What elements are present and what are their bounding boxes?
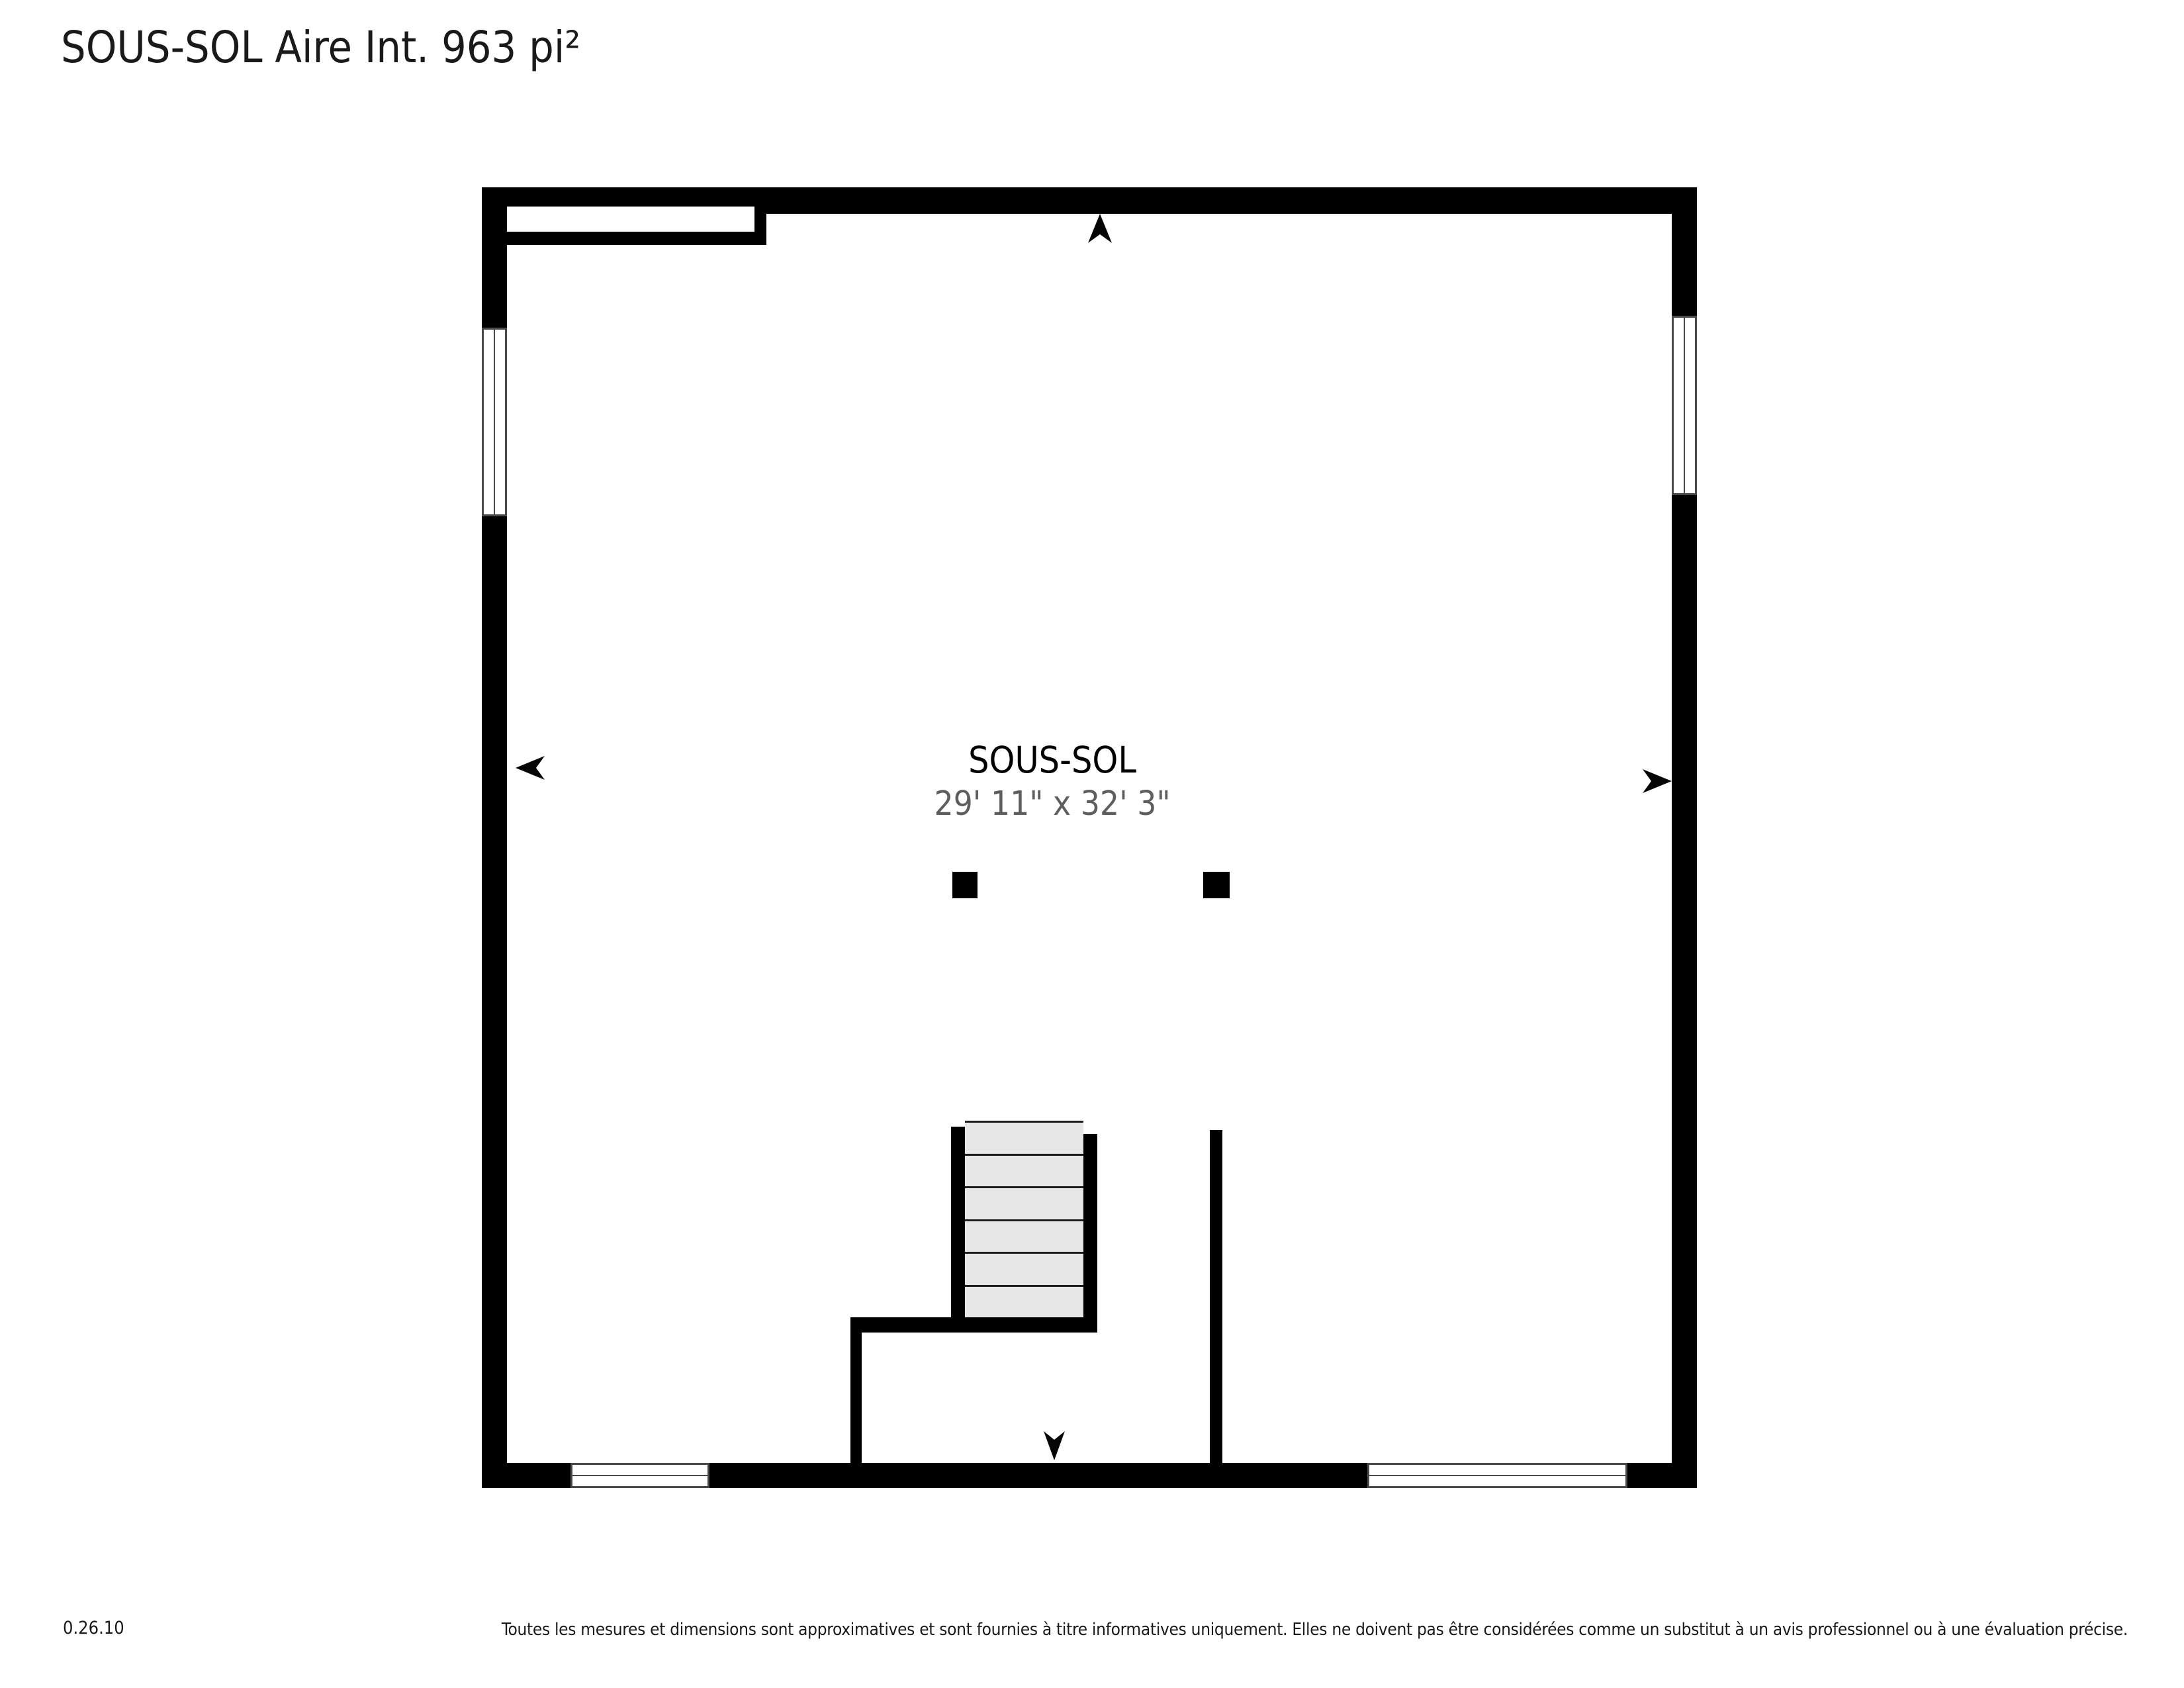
version-label: 0.26.10 (63, 1618, 124, 1638)
window-bottom-left (570, 1463, 709, 1488)
window-mullion (572, 1475, 708, 1476)
arrow-left-icon (516, 756, 545, 780)
wall-right-of-stairs (1210, 1130, 1222, 1463)
window-right (1672, 316, 1697, 495)
stair-wall-right (1083, 1134, 1097, 1317)
wall-below-stairs-left (850, 1333, 862, 1463)
stair-tread (965, 1186, 1083, 1219)
stair-tread (965, 1154, 1083, 1187)
wall-left-upper (482, 187, 507, 328)
stair-tread (965, 1121, 1083, 1154)
window-left (482, 328, 507, 516)
stair-tread (965, 1285, 1083, 1318)
wall-bottom-right (1627, 1463, 1697, 1488)
stair-wall-bottom (850, 1317, 1097, 1333)
column-post-left (952, 872, 978, 898)
wall-left-lower (482, 516, 507, 1488)
floorplan-page: SOUS-SOL Aire Int. 963 pi² (0, 0, 2184, 1688)
wall-bottom-left (482, 1463, 570, 1488)
stair-tread (965, 1252, 1083, 1285)
arrow-right-icon (1643, 769, 1672, 793)
arrow-up-icon (1088, 214, 1112, 243)
window-bottom-right (1367, 1463, 1627, 1488)
room-dimensions: 29' 11" x 32' 3" (788, 785, 1317, 823)
wall-right-lower (1672, 495, 1697, 1488)
overhang-opening (500, 207, 754, 232)
stair-tread (965, 1219, 1083, 1252)
column-post-right (1203, 872, 1230, 898)
disclaimer-text: Toutes les mesures et dimensions sont ap… (502, 1620, 2128, 1640)
wall-bottom-center (709, 1463, 1367, 1488)
room-label-block: SOUS-SOL 29' 11" x 32' 3" (788, 740, 1317, 823)
window-mullion (1369, 1475, 1626, 1476)
window-mullion (1684, 317, 1685, 494)
wall-right-upper (1672, 187, 1697, 316)
stair-wall-left (951, 1127, 965, 1317)
window-mullion (494, 329, 495, 515)
floorplan-canvas: SOUS-SOL 29' 11" x 32' 3" (0, 0, 2184, 1688)
arrow-down-icon (1044, 1431, 1065, 1460)
room-label: SOUS-SOL (788, 740, 1317, 781)
stair-treads (965, 1121, 1083, 1317)
